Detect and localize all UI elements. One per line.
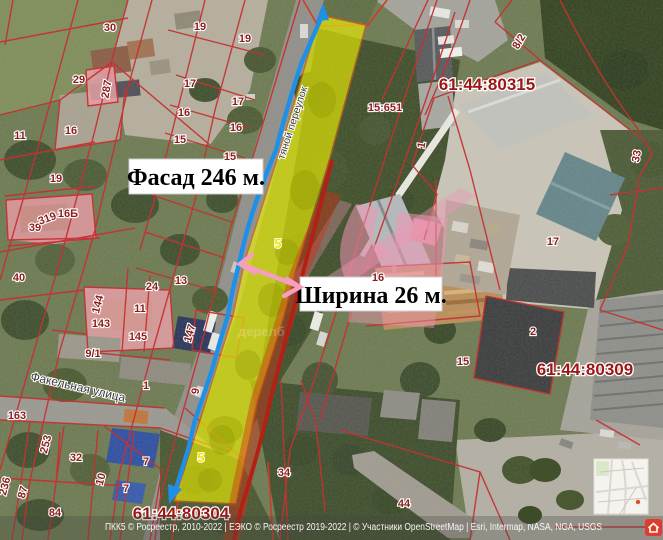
svg-text:44: 44 — [398, 498, 411, 510]
svg-text:15: 15 — [457, 356, 469, 368]
svg-text:16: 16 — [372, 272, 384, 284]
svg-text:5: 5 — [197, 450, 204, 465]
svg-text:Фасад 246 м.: Фасад 246 м. — [127, 165, 265, 191]
svg-text:9/1: 9/1 — [85, 348, 100, 360]
svg-text:5: 5 — [274, 236, 281, 251]
svg-text:19: 19 — [194, 21, 206, 33]
svg-text:19: 19 — [239, 33, 251, 45]
svg-text:163: 163 — [8, 410, 26, 422]
svg-text:11: 11 — [14, 130, 26, 142]
svg-text:16: 16 — [230, 122, 242, 134]
svg-text:17: 17 — [232, 96, 244, 108]
svg-text:33: 33 — [630, 149, 644, 163]
svg-text:17: 17 — [184, 78, 196, 90]
svg-text:40: 40 — [13, 272, 25, 284]
svg-text:32: 32 — [70, 452, 82, 464]
svg-text:2: 2 — [530, 326, 536, 338]
svg-text:15:651: 15:651 — [368, 102, 402, 114]
svg-text:24: 24 — [146, 281, 159, 293]
svg-text:13: 13 — [175, 275, 187, 287]
svg-text:15: 15 — [224, 151, 236, 163]
svg-text:17: 17 — [547, 236, 559, 248]
svg-text:143: 143 — [92, 318, 110, 330]
svg-text:61:44:80315: 61:44:80315 — [439, 75, 535, 94]
svg-text:145: 145 — [129, 331, 147, 343]
svg-text:дерелб: дерелб — [238, 324, 285, 339]
svg-text:15: 15 — [174, 134, 186, 146]
svg-text:1: 1 — [143, 380, 149, 392]
svg-text:16: 16 — [65, 125, 77, 137]
svg-text:34: 34 — [278, 467, 291, 479]
svg-text:19: 19 — [50, 173, 62, 185]
svg-text:7: 7 — [143, 456, 149, 468]
svg-text:7: 7 — [123, 483, 129, 495]
svg-text:Ширина 26 м.: Ширина 26 м. — [295, 283, 447, 309]
svg-text:29: 29 — [73, 74, 85, 86]
svg-text:16: 16 — [178, 107, 190, 119]
svg-text:61:44:80309: 61:44:80309 — [537, 360, 633, 379]
svg-text:11: 11 — [134, 303, 146, 315]
svg-text:30: 30 — [104, 22, 116, 34]
svg-text:16Б: 16Б — [58, 208, 78, 220]
